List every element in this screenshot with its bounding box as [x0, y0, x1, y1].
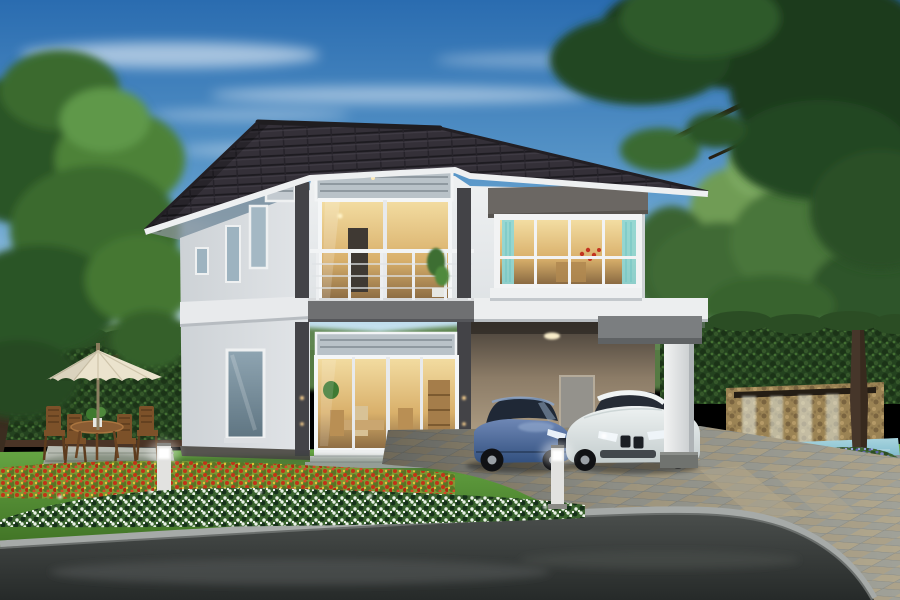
carport-ceiling-light [544, 333, 560, 340]
carport-pillar [660, 344, 698, 468]
ground-window [224, 350, 267, 443]
bay-window [490, 214, 642, 301]
house-rendering-photo [0, 0, 900, 600]
balcony-slab [308, 298, 474, 322]
lower-transom-louver [316, 333, 456, 357]
